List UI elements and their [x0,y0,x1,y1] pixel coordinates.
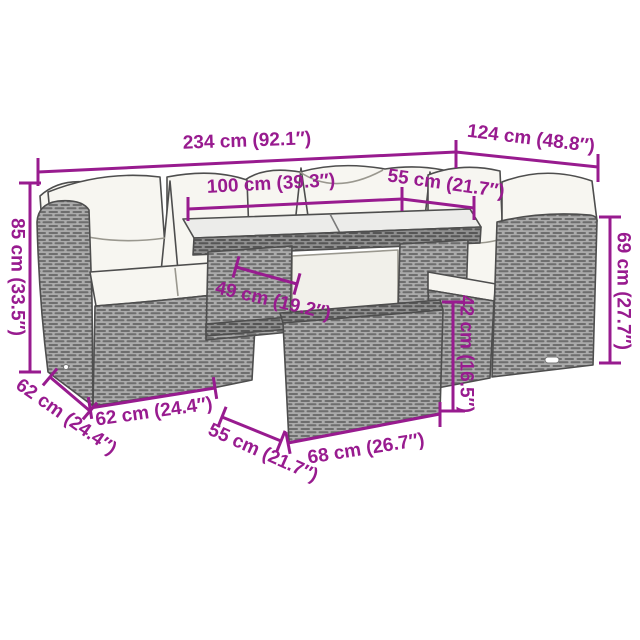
label-overall-width: 234 cm (92.1″) [182,128,311,153]
dimension-diagram-canvas: 234 cm (92.1″) 124 cm (48.8″) 100 cm (39… [0,0,640,640]
label-arm-height: 69 cm (27.7″) [613,232,634,350]
right-armrest-panel [492,214,597,377]
label-back-height: 85 cm (33.5″) [7,218,28,336]
left-armrest-panel [37,201,93,406]
label-overall-depth: 124 cm (48.8″) [466,121,596,157]
product-dimension-image: 234 cm (92.1″) 124 cm (48.8″) 100 cm (39… [0,0,640,640]
rivet-button [545,357,559,363]
ottoman-front-face [283,310,443,442]
ottoman [280,300,443,442]
label-table-height: 42 cm (16.5″) [456,295,477,413]
rivet-button [64,365,69,370]
